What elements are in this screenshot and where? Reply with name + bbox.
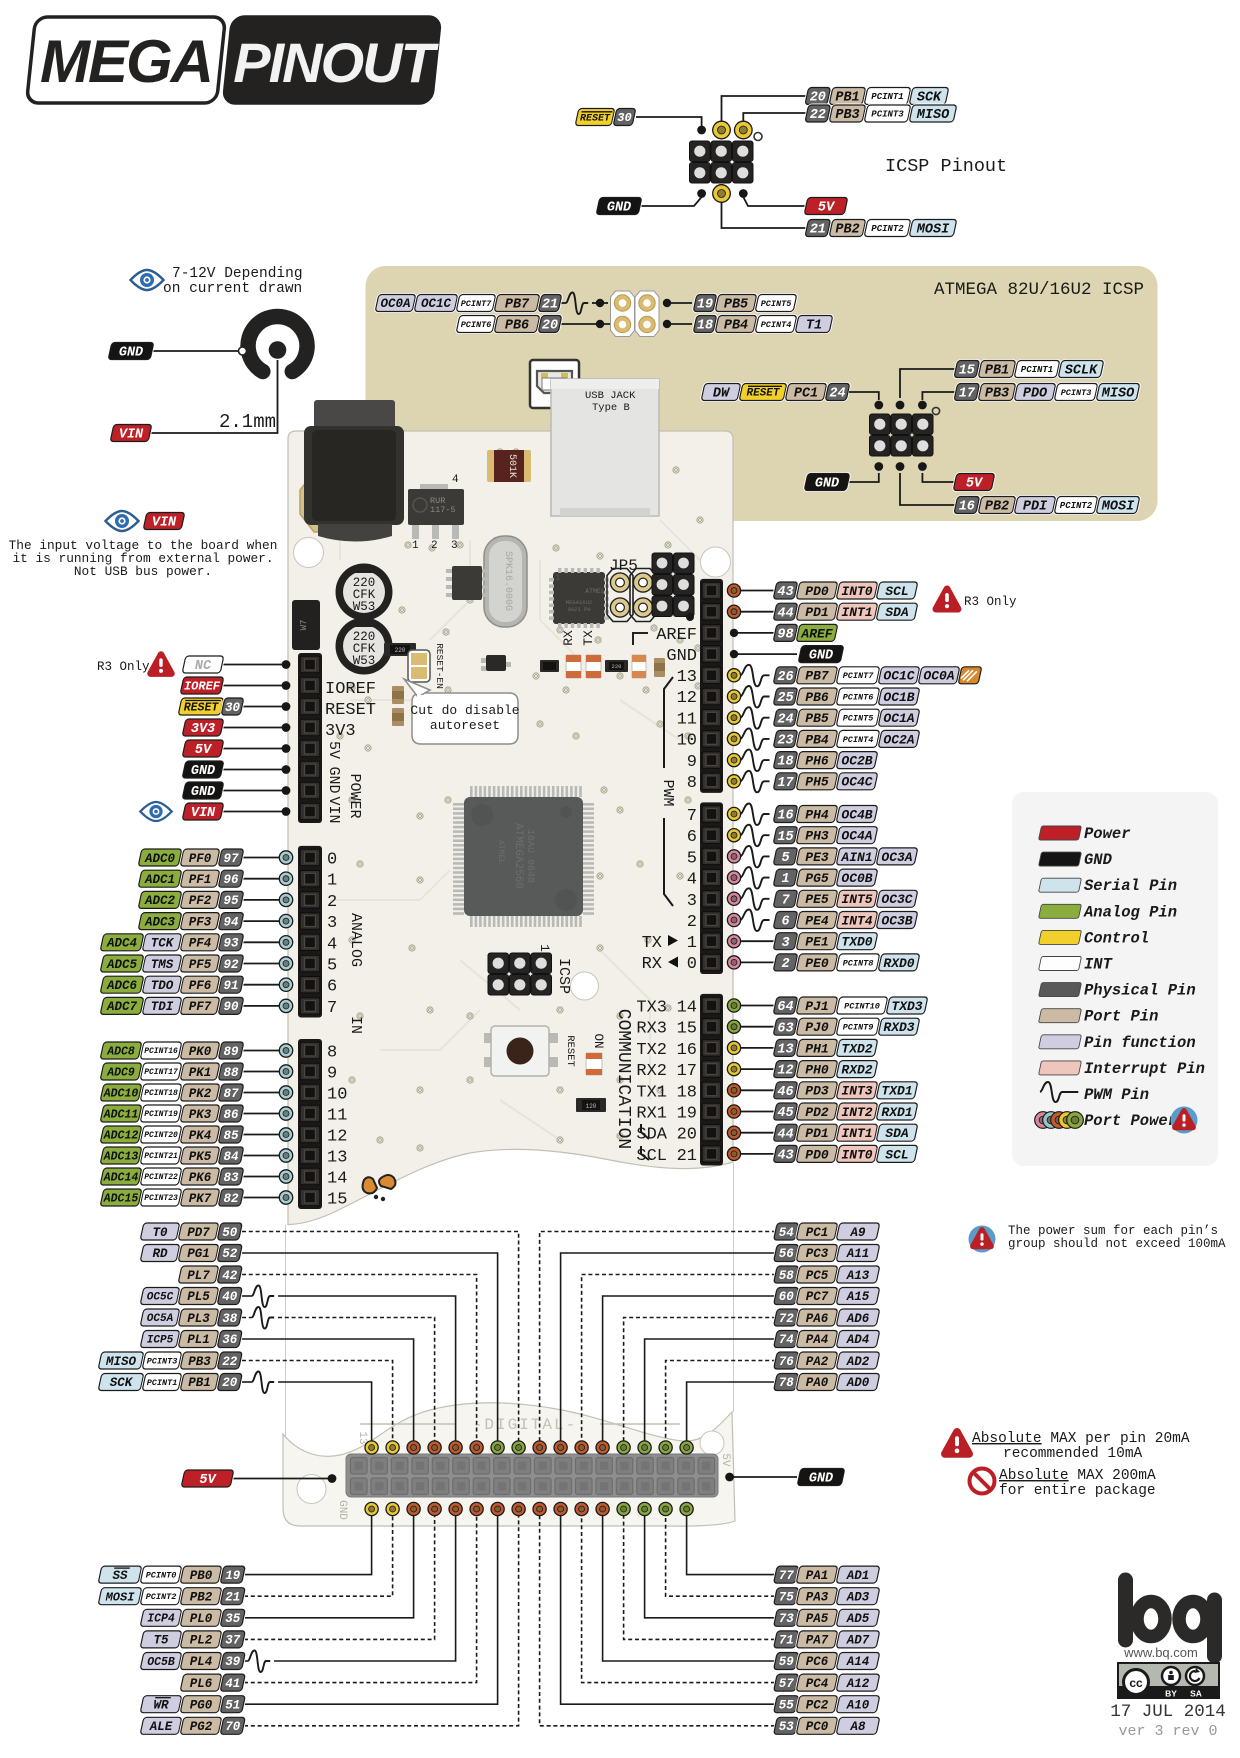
svg-text:71: 71: [779, 1634, 794, 1648]
svg-text:PG2: PG2: [190, 1720, 213, 1734]
svg-text:1: 1: [781, 872, 789, 887]
svg-text:PCINT22: PCINT22: [144, 1173, 178, 1182]
svg-text:RESET: RESET: [580, 113, 611, 124]
svg-text:9: 9: [687, 753, 697, 772]
svg-text:78: 78: [779, 1376, 795, 1390]
svg-text:42: 42: [222, 1269, 238, 1283]
svg-text:16: 16: [677, 1041, 697, 1060]
svg-text:96: 96: [223, 873, 239, 887]
svg-text:PK6: PK6: [189, 1171, 212, 1185]
svg-text:Interrupt Pin: Interrupt Pin: [1084, 1060, 1205, 1078]
svg-text:Port Pin: Port Pin: [1084, 1008, 1158, 1026]
svg-text:PWM: PWM: [659, 779, 676, 806]
svg-text:ADC11: ADC11: [103, 1108, 139, 1121]
svg-text:Absolute MAX per pin 20mA: Absolute MAX per pin 20mA: [972, 1431, 1190, 1447]
svg-text:INT4: INT4: [841, 913, 872, 928]
svg-text:ADC9: ADC9: [106, 1066, 135, 1079]
svg-text:12: 12: [677, 689, 697, 708]
svg-text:87: 87: [223, 1087, 239, 1101]
svg-text:W7: W7: [299, 620, 309, 631]
svg-text:-DIGITAL-: -DIGITAL-: [473, 1416, 577, 1434]
svg-text:3: 3: [327, 914, 337, 933]
svg-text:PDI: PDI: [1023, 500, 1048, 515]
svg-text:PB0: PB0: [190, 1569, 213, 1583]
svg-text:OC1B: OC1B: [883, 690, 914, 705]
svg-text:PK0: PK0: [189, 1045, 212, 1059]
svg-text:PCINT3: PCINT3: [871, 110, 904, 120]
svg-text:ADC6: ADC6: [106, 979, 138, 993]
svg-text:17: 17: [677, 1062, 697, 1081]
svg-text:7-12V Depending: 7-12V Depending: [172, 266, 303, 282]
svg-text:MISO: MISO: [1101, 387, 1134, 402]
svg-text:15: 15: [777, 830, 793, 845]
svg-text:GND: GND: [325, 766, 342, 793]
svg-text:86: 86: [223, 1108, 239, 1122]
svg-text:3: 3: [451, 540, 458, 552]
svg-text:USB JACK: USB JACK: [585, 390, 636, 402]
svg-text:GND: GND: [607, 201, 631, 216]
svg-text:4: 4: [687, 871, 697, 890]
svg-text:PD3: PD3: [805, 1084, 829, 1099]
svg-text:OC3B: OC3B: [881, 913, 912, 928]
svg-text:PCINT1: PCINT1: [1021, 365, 1053, 375]
svg-text:INT5: INT5: [841, 892, 872, 907]
svg-text:PL5: PL5: [187, 1290, 210, 1304]
svg-text:501K: 501K: [506, 454, 517, 478]
svg-text:89: 89: [223, 1045, 239, 1059]
svg-text:PCINT16: PCINT16: [144, 1047, 178, 1056]
svg-text:PCINT3: PCINT3: [1061, 388, 1092, 398]
svg-text:PC5: PC5: [806, 1269, 829, 1283]
svg-text:56: 56: [779, 1247, 795, 1261]
svg-text:PL1: PL1: [187, 1333, 210, 1347]
svg-text:30: 30: [225, 701, 241, 715]
svg-text:PL0: PL0: [190, 1612, 213, 1626]
svg-text:PDO: PDO: [1023, 387, 1047, 402]
svg-text:59: 59: [779, 1655, 795, 1669]
svg-text:PCINT23: PCINT23: [144, 1194, 178, 1203]
svg-text:PD0: PD0: [805, 1147, 829, 1162]
svg-text:SCLK: SCLK: [1065, 364, 1099, 379]
svg-text:SS: SS: [112, 1569, 128, 1583]
svg-text:PG0: PG0: [190, 1699, 213, 1713]
svg-text:20: 20: [542, 319, 558, 334]
svg-text:PE5: PE5: [805, 892, 829, 907]
svg-text:PJ0: PJ0: [805, 1020, 829, 1035]
svg-text:OC2B: OC2B: [841, 754, 872, 769]
svg-text:A11: A11: [846, 1247, 870, 1261]
svg-text:recommended 10mA: recommended 10mA: [1003, 1446, 1143, 1462]
svg-text:INT0: INT0: [841, 1147, 872, 1162]
svg-text:A13: A13: [846, 1269, 870, 1283]
svg-text:4: 4: [327, 935, 337, 954]
svg-text:PCINT21: PCINT21: [144, 1152, 178, 1161]
svg-text:PJ1: PJ1: [805, 999, 828, 1014]
svg-text:20: 20: [677, 1126, 697, 1145]
svg-text:VIN: VIN: [152, 516, 177, 531]
svg-text:ADC0: ADC0: [144, 852, 176, 866]
svg-text:MOSI: MOSI: [105, 1590, 136, 1604]
svg-text:3: 3: [687, 892, 697, 911]
svg-text:22: 22: [222, 1355, 238, 1369]
svg-text:117-5: 117-5: [430, 505, 456, 515]
svg-text:A15: A15: [846, 1290, 870, 1304]
svg-text:17: 17: [959, 387, 976, 402]
svg-text:PB5: PB5: [724, 298, 748, 313]
svg-text:45: 45: [777, 1106, 793, 1121]
svg-text:Port Power: Port Power: [1084, 1112, 1177, 1130]
svg-text:3: 3: [781, 936, 789, 951]
svg-text:57: 57: [779, 1677, 795, 1691]
svg-text:PB4: PB4: [724, 319, 748, 334]
svg-text:AD3: AD3: [846, 1590, 870, 1604]
svg-text:PD2: PD2: [805, 1105, 829, 1120]
svg-text:OC5C: OC5C: [147, 1292, 174, 1304]
svg-text:PB1: PB1: [835, 91, 859, 106]
svg-text:WR: WR: [153, 1699, 169, 1713]
svg-text:IN: IN: [347, 1016, 364, 1034]
svg-text:R3 Only: R3 Only: [97, 660, 150, 674]
svg-text:3V3: 3V3: [325, 722, 356, 741]
svg-text:PK4: PK4: [189, 1129, 212, 1143]
svg-text:PF5: PF5: [189, 958, 212, 972]
svg-text:PH6: PH6: [805, 754, 829, 769]
svg-text:37: 37: [225, 1634, 241, 1648]
svg-text:AD5: AD5: [846, 1612, 870, 1626]
svg-text:ICP4: ICP4: [147, 1613, 175, 1626]
svg-text:ADC7: ADC7: [106, 1000, 138, 1014]
svg-text:AD2: AD2: [846, 1355, 870, 1369]
svg-text:10: 10: [677, 732, 697, 751]
svg-text:88: 88: [223, 1066, 239, 1080]
svg-text:82: 82: [223, 1192, 239, 1206]
svg-text:PE4: PE4: [805, 913, 829, 928]
svg-text:PA0: PA0: [806, 1376, 829, 1390]
svg-text:43: 43: [777, 585, 793, 600]
svg-text:PB2: PB2: [835, 223, 859, 238]
svg-text:54: 54: [779, 1226, 795, 1240]
svg-text:PCINT1: PCINT1: [147, 1378, 178, 1388]
svg-text:0823 PH: 0823 PH: [567, 606, 590, 613]
svg-text:OC4A: OC4A: [841, 829, 872, 844]
svg-text:MEGA: MEGA: [40, 28, 212, 95]
svg-text:PD1: PD1: [805, 605, 828, 620]
svg-text:PCINT6: PCINT6: [461, 320, 492, 330]
svg-text:ADC14: ADC14: [103, 1171, 139, 1184]
svg-text:94: 94: [223, 915, 239, 929]
svg-text:PK2: PK2: [189, 1087, 212, 1101]
svg-text:Physical Pin: Physical Pin: [1084, 982, 1196, 1000]
svg-text:COMMUNICATION: COMMUNICATION: [613, 1009, 633, 1149]
svg-text:SA: SA: [1190, 1689, 1202, 1699]
svg-text:ICP5: ICP5: [147, 1335, 174, 1347]
svg-text:PG1: PG1: [187, 1247, 210, 1261]
svg-text:INT3: INT3: [841, 1084, 872, 1099]
svg-text:19: 19: [697, 298, 713, 313]
svg-text:PCINT17: PCINT17: [144, 1068, 178, 1077]
svg-text:PB2: PB2: [985, 500, 1009, 515]
svg-text:15: 15: [959, 364, 975, 379]
svg-text:12: 12: [327, 1128, 347, 1147]
svg-text:30: 30: [617, 111, 631, 125]
svg-text:INT2: INT2: [841, 1105, 872, 1120]
svg-text:0: 0: [687, 955, 697, 974]
svg-text:6: 6: [781, 915, 789, 930]
svg-text:PB3: PB3: [835, 108, 859, 123]
svg-text:RXD0: RXD0: [883, 956, 914, 971]
svg-text:R3 Only: R3 Only: [964, 595, 1017, 609]
svg-text:TDO: TDO: [151, 979, 174, 993]
svg-text:AD6: AD6: [846, 1312, 870, 1326]
svg-text:73: 73: [779, 1612, 795, 1626]
svg-text:PL6: PL6: [190, 1677, 213, 1691]
svg-text:ADC2: ADC2: [144, 894, 176, 908]
svg-text:AD7: AD7: [846, 1634, 870, 1648]
svg-text:21: 21: [810, 223, 826, 238]
svg-text:group should not exceed 100mA: group should not exceed 100mA: [1008, 1237, 1226, 1251]
svg-text:PCINT4: PCINT4: [761, 320, 792, 330]
svg-text:PC4: PC4: [806, 1677, 829, 1691]
svg-text:SCL: SCL: [885, 584, 908, 599]
svg-text:13: 13: [356, 1431, 368, 1444]
svg-text:PB6: PB6: [805, 690, 829, 705]
svg-text:PC2: PC2: [806, 1698, 829, 1712]
svg-text:PCINT20: PCINT20: [144, 1131, 178, 1140]
svg-text:41: 41: [225, 1677, 240, 1691]
svg-text:VIN: VIN: [191, 806, 216, 821]
svg-text:98: 98: [777, 628, 793, 643]
svg-text:MOSI: MOSI: [1101, 500, 1135, 515]
svg-text:44: 44: [777, 606, 793, 621]
svg-text:INT: INT: [1084, 956, 1114, 974]
svg-text:PE1: PE1: [805, 935, 828, 950]
svg-text:PB3: PB3: [985, 387, 1009, 402]
svg-text:5V: 5V: [199, 1473, 217, 1488]
svg-text:T1: T1: [806, 319, 822, 334]
svg-text:19: 19: [225, 1569, 241, 1583]
svg-text:TMS: TMS: [151, 958, 174, 972]
svg-text:autoreset: autoreset: [430, 718, 500, 733]
svg-text:51: 51: [225, 1699, 240, 1713]
svg-text:PB1: PB1: [985, 364, 1009, 379]
svg-text:92: 92: [223, 958, 239, 972]
svg-text:10: 10: [327, 1086, 347, 1105]
svg-text:NC: NC: [195, 659, 212, 674]
svg-text:1: 1: [555, 573, 560, 583]
svg-text:PF1: PF1: [189, 873, 212, 887]
svg-text:IOREF: IOREF: [184, 680, 221, 694]
svg-text:PC1: PC1: [806, 1226, 829, 1240]
svg-text:PL3: PL3: [187, 1312, 210, 1326]
svg-text:SCK: SCK: [917, 91, 943, 106]
svg-text:21: 21: [542, 298, 558, 313]
svg-text:20: 20: [222, 1376, 238, 1390]
svg-text:OC0A: OC0A: [380, 297, 410, 311]
svg-text:INT1: INT1: [841, 1126, 872, 1141]
svg-text:www.bq.com: www.bq.com: [1123, 1645, 1198, 1660]
svg-text:72: 72: [779, 1312, 795, 1326]
svg-text:PC3: PC3: [806, 1247, 829, 1261]
svg-text:RESET: RESET: [564, 1035, 576, 1067]
svg-text:SCL: SCL: [885, 1147, 908, 1162]
svg-text:Power: Power: [1084, 825, 1131, 843]
svg-text:GND: GND: [1084, 851, 1113, 869]
svg-text:AD1: AD1: [846, 1569, 870, 1583]
svg-text:8: 8: [327, 1044, 337, 1063]
svg-text:Analog Pin: Analog Pin: [1083, 903, 1177, 921]
svg-text:ATMEL: ATMEL: [585, 588, 605, 595]
svg-text:PCINT7: PCINT7: [843, 671, 875, 681]
svg-text:PCINT8: PCINT8: [843, 958, 874, 968]
svg-text:ADC13: ADC13: [103, 1150, 139, 1163]
svg-text:PA2: PA2: [806, 1355, 829, 1369]
svg-text:PCINT6: PCINT6: [843, 692, 874, 702]
svg-text:25: 25: [777, 691, 793, 706]
svg-text:Absolute MAX 200mA: Absolute MAX 200mA: [999, 1468, 1156, 1484]
svg-text:PC1: PC1: [794, 387, 818, 402]
svg-text:ADC5: ADC5: [106, 958, 138, 972]
svg-text:A9: A9: [849, 1226, 866, 1240]
svg-text:OC1C: OC1C: [421, 297, 452, 311]
svg-text:TX1: TX1: [636, 1083, 667, 1102]
svg-text:21: 21: [225, 1591, 240, 1605]
svg-text:24: 24: [829, 387, 845, 402]
svg-text:PCINT18: PCINT18: [144, 1089, 178, 1098]
svg-text:ATMEGA2560: ATMEGA2560: [512, 823, 524, 889]
svg-text:TX3: TX3: [636, 999, 667, 1018]
svg-text:18: 18: [677, 1083, 697, 1102]
svg-text:43: 43: [777, 1149, 793, 1164]
svg-text:SDA: SDA: [885, 1126, 909, 1141]
svg-text:OC3A: OC3A: [881, 850, 912, 865]
svg-text:RESET: RESET: [325, 701, 376, 720]
svg-text:DW: DW: [713, 387, 731, 402]
svg-text:PD0: PD0: [805, 584, 829, 599]
svg-text:RXD3: RXD3: [883, 1020, 914, 1035]
svg-text:W53: W53: [353, 654, 376, 668]
svg-text:RX: RX: [642, 955, 662, 974]
svg-text:3V3: 3V3: [191, 722, 215, 737]
svg-text:for entire package: for entire package: [999, 1483, 1156, 1499]
svg-text:18: 18: [697, 319, 713, 334]
svg-text:PCINT1: PCINT1: [871, 92, 903, 102]
svg-text:OC5B: OC5B: [147, 1656, 175, 1669]
svg-text:15: 15: [677, 1020, 697, 1039]
svg-text:1: 1: [412, 540, 419, 552]
svg-text:13: 13: [777, 1043, 793, 1058]
svg-text:PF2: PF2: [189, 894, 212, 908]
svg-text:52: 52: [222, 1247, 238, 1261]
svg-text:PA7: PA7: [806, 1634, 829, 1648]
svg-text:18: 18: [777, 755, 793, 770]
svg-text:ALE: ALE: [149, 1720, 173, 1734]
svg-text:2: 2: [781, 957, 789, 972]
svg-text:5V: 5V: [719, 1453, 731, 1467]
svg-text:11: 11: [327, 1107, 347, 1126]
svg-text:AD0: AD0: [846, 1376, 870, 1390]
svg-text:4: 4: [452, 474, 459, 486]
svg-text:IOREF: IOREF: [325, 680, 376, 699]
svg-text:8: 8: [687, 774, 697, 793]
svg-text:RX: RX: [561, 630, 576, 646]
svg-text:PB4: PB4: [805, 732, 829, 747]
svg-text:1: 1: [327, 872, 337, 891]
svg-text:ADC4: ADC4: [106, 937, 138, 951]
svg-text:PCINT3: PCINT3: [147, 1356, 178, 1366]
svg-text:OC1A: OC1A: [883, 711, 914, 726]
svg-text:RESET-EN: RESET-EN: [434, 643, 445, 689]
svg-text:PCINT2: PCINT2: [871, 224, 904, 234]
svg-text:INT0: INT0: [841, 584, 872, 599]
svg-text:RXD1: RXD1: [881, 1105, 912, 1120]
svg-text:16: 16: [959, 500, 975, 515]
svg-text:A8: A8: [849, 1720, 866, 1734]
svg-text:5V: 5V: [966, 477, 984, 492]
svg-text:220: 220: [395, 647, 406, 654]
svg-text:220: 220: [612, 663, 622, 670]
svg-text:VIN: VIN: [325, 796, 342, 823]
svg-text:74: 74: [779, 1333, 795, 1347]
svg-text:6: 6: [687, 828, 697, 847]
svg-text:TXD1: TXD1: [881, 1084, 912, 1099]
svg-text:MEGA16U2: MEGA16U2: [566, 599, 592, 606]
svg-text:PF7: PF7: [189, 1000, 212, 1014]
svg-text:14: 14: [677, 999, 697, 1018]
svg-text:PF6: PF6: [189, 979, 212, 993]
svg-text:76: 76: [779, 1355, 795, 1369]
svg-text:OC5A: OC5A: [147, 1313, 174, 1325]
svg-text:PE0: PE0: [805, 956, 829, 971]
svg-text:5V: 5V: [325, 741, 342, 759]
svg-text:PB3: PB3: [188, 1355, 211, 1369]
svg-text:120: 120: [586, 1103, 597, 1110]
svg-text:40: 40: [222, 1290, 238, 1304]
svg-text:PK7: PK7: [189, 1192, 212, 1206]
svg-text:W53: W53: [353, 600, 376, 614]
svg-text:15: 15: [327, 1191, 347, 1210]
svg-text:RX3: RX3: [636, 1020, 667, 1039]
svg-text:GND: GND: [815, 477, 839, 492]
svg-text:OC3C: OC3C: [881, 892, 912, 907]
svg-text:AIN1: AIN1: [840, 850, 872, 865]
svg-text:TXD2: TXD2: [841, 1041, 872, 1056]
svg-text:PL4: PL4: [190, 1655, 213, 1669]
svg-text:TCK: TCK: [151, 937, 175, 951]
svg-text:ADC12: ADC12: [103, 1129, 139, 1142]
svg-text:PF3: PF3: [189, 915, 212, 929]
svg-text:PA6: PA6: [806, 1312, 829, 1326]
svg-text:90: 90: [223, 1000, 239, 1014]
svg-text:SCK: SCK: [110, 1376, 134, 1390]
svg-text:20: 20: [810, 91, 826, 106]
svg-text:5: 5: [327, 957, 337, 976]
svg-text:A10: A10: [846, 1698, 870, 1712]
svg-text:44: 44: [777, 1127, 793, 1142]
svg-text:PA4: PA4: [806, 1333, 829, 1347]
svg-text:RX2: RX2: [636, 1062, 667, 1081]
svg-text:PK5: PK5: [189, 1150, 212, 1164]
svg-text:PB7: PB7: [805, 669, 829, 684]
svg-text:PB2: PB2: [190, 1591, 213, 1605]
svg-text:ver 3 rev 0: ver 3 rev 0: [1118, 1723, 1217, 1740]
svg-text:2.1mm: 2.1mm: [219, 411, 276, 433]
svg-text:T5: T5: [153, 1634, 169, 1648]
svg-text:17: 17: [777, 776, 794, 791]
svg-text:PH4: PH4: [805, 807, 829, 822]
svg-text:A14: A14: [846, 1655, 870, 1669]
svg-text:22: 22: [810, 108, 826, 123]
svg-text:PWM Pin: PWM Pin: [1084, 1086, 1149, 1104]
